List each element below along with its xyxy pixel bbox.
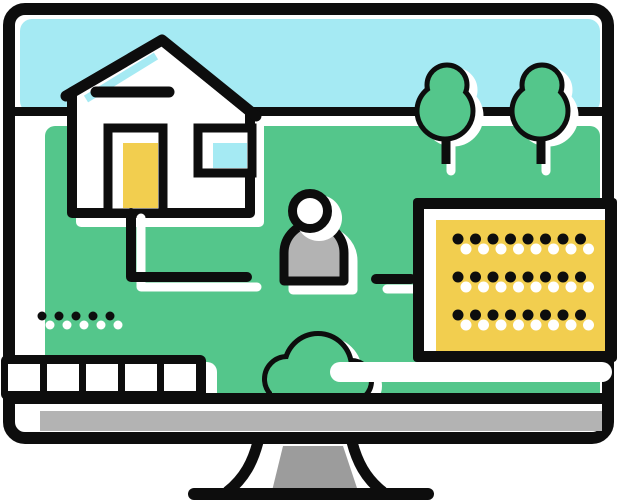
dot-white [531,320,542,331]
dot-black [523,272,534,283]
dot-white [461,320,472,331]
dot-white [496,244,507,255]
text-panel-shadow [330,362,612,382]
dot-white [583,282,594,293]
dot-white [513,282,524,293]
dot-black [505,234,516,245]
film-strip-cells [8,364,196,391]
dot-black [575,310,586,321]
dot-white [566,320,577,331]
dot-white [548,282,559,293]
dot-black [540,272,551,283]
text-panel [413,198,617,362]
dot-white [548,320,559,331]
dot-white [461,244,472,255]
illustration-stage [0,0,618,500]
dot-white [461,282,472,293]
dot-white [531,244,542,255]
dot-white [63,321,72,330]
dot-black [453,234,464,245]
dot-black [575,234,586,245]
tree-foliage-fill [515,86,566,137]
screen-bottom-edge [7,393,609,404]
dot-white [583,244,594,255]
dot-black [38,312,47,321]
film-strip-cell [125,364,157,391]
dot-white [583,320,594,331]
dot-white [478,320,489,331]
dot-black [558,272,569,283]
film-strip-cell [8,364,40,391]
dot-black [523,234,534,245]
dot-white [496,320,507,331]
dot-white [513,244,524,255]
dot-black [575,272,586,283]
dot-white [80,321,89,330]
dot-white [513,320,524,331]
dot-black [540,234,551,245]
dot-black [470,310,481,321]
dot-black [558,234,569,245]
dot-white [46,321,55,330]
house-door-accent [123,143,158,208]
dot-white [496,282,507,293]
dot-white [478,282,489,293]
dot-black [106,312,115,321]
dot-white [548,244,559,255]
dot-black [488,310,499,321]
film-strip-cell [164,364,196,391]
dot-black [55,312,64,321]
monitor-chin-bar [40,411,602,431]
dot-black [505,272,516,283]
film-strip-cell [86,364,118,391]
dot-white [478,244,489,255]
dot-white [566,282,577,293]
dot-black [558,310,569,321]
dot-black [470,234,481,245]
tree-foliage-fill [420,86,471,137]
house-window-pane [213,143,247,168]
dot-white [114,321,123,330]
monitor-landscape-illustration [0,0,618,500]
dot-black [72,312,81,321]
dot-black [523,310,534,321]
dot-black [453,310,464,321]
dot-black [488,234,499,245]
dot-black [505,310,516,321]
stand-neck-fill [272,446,358,491]
dot-white [566,244,577,255]
dot-black [540,310,551,321]
person-head [293,194,328,229]
dot-black [470,272,481,283]
dot-white [531,282,542,293]
film-strip-cell [47,364,79,391]
dot-black [89,312,98,321]
dot-black [488,272,499,283]
dot-black [453,272,464,283]
dot-white [97,321,106,330]
